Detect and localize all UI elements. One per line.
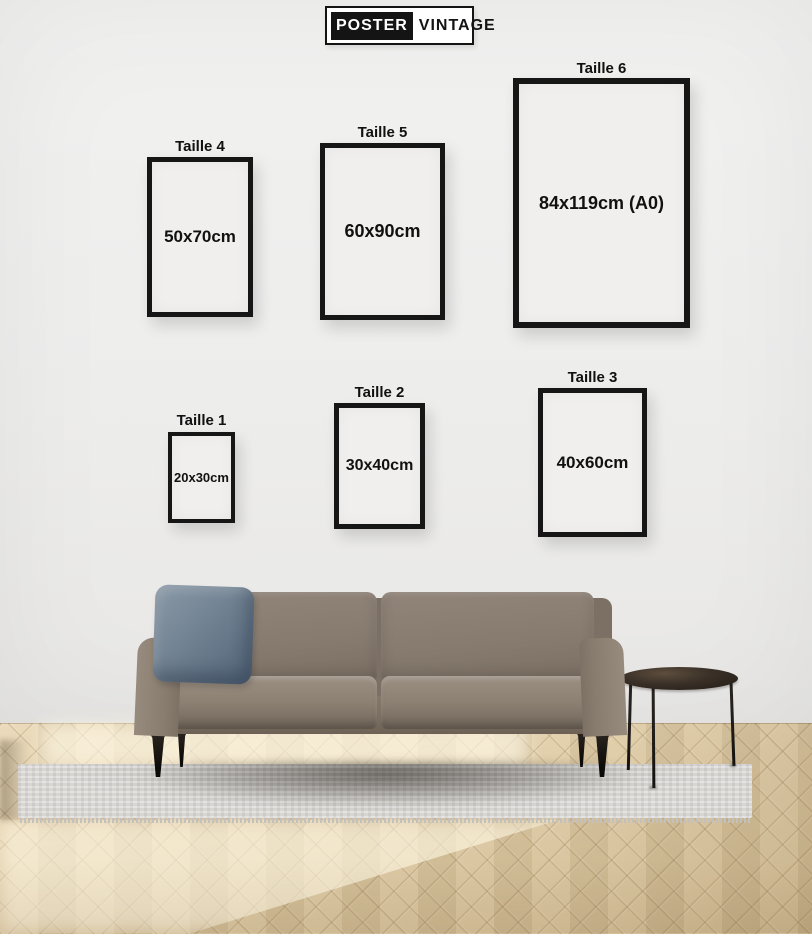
sofa-seat-cushion-right — [381, 676, 602, 729]
sofa-armrest-right — [579, 637, 627, 737]
sofa-seat-cushion-left — [157, 676, 377, 729]
sofa-leg — [147, 730, 169, 777]
sofa-leg — [591, 730, 613, 777]
poster-size-guide-scene: POSTER VINTAGE Taille 4 50x70cm Taille 5… — [0, 0, 812, 933]
sofa — [0, 0, 812, 933]
throw-pillow — [152, 584, 254, 684]
sofa-back-cushion-right — [381, 592, 594, 685]
